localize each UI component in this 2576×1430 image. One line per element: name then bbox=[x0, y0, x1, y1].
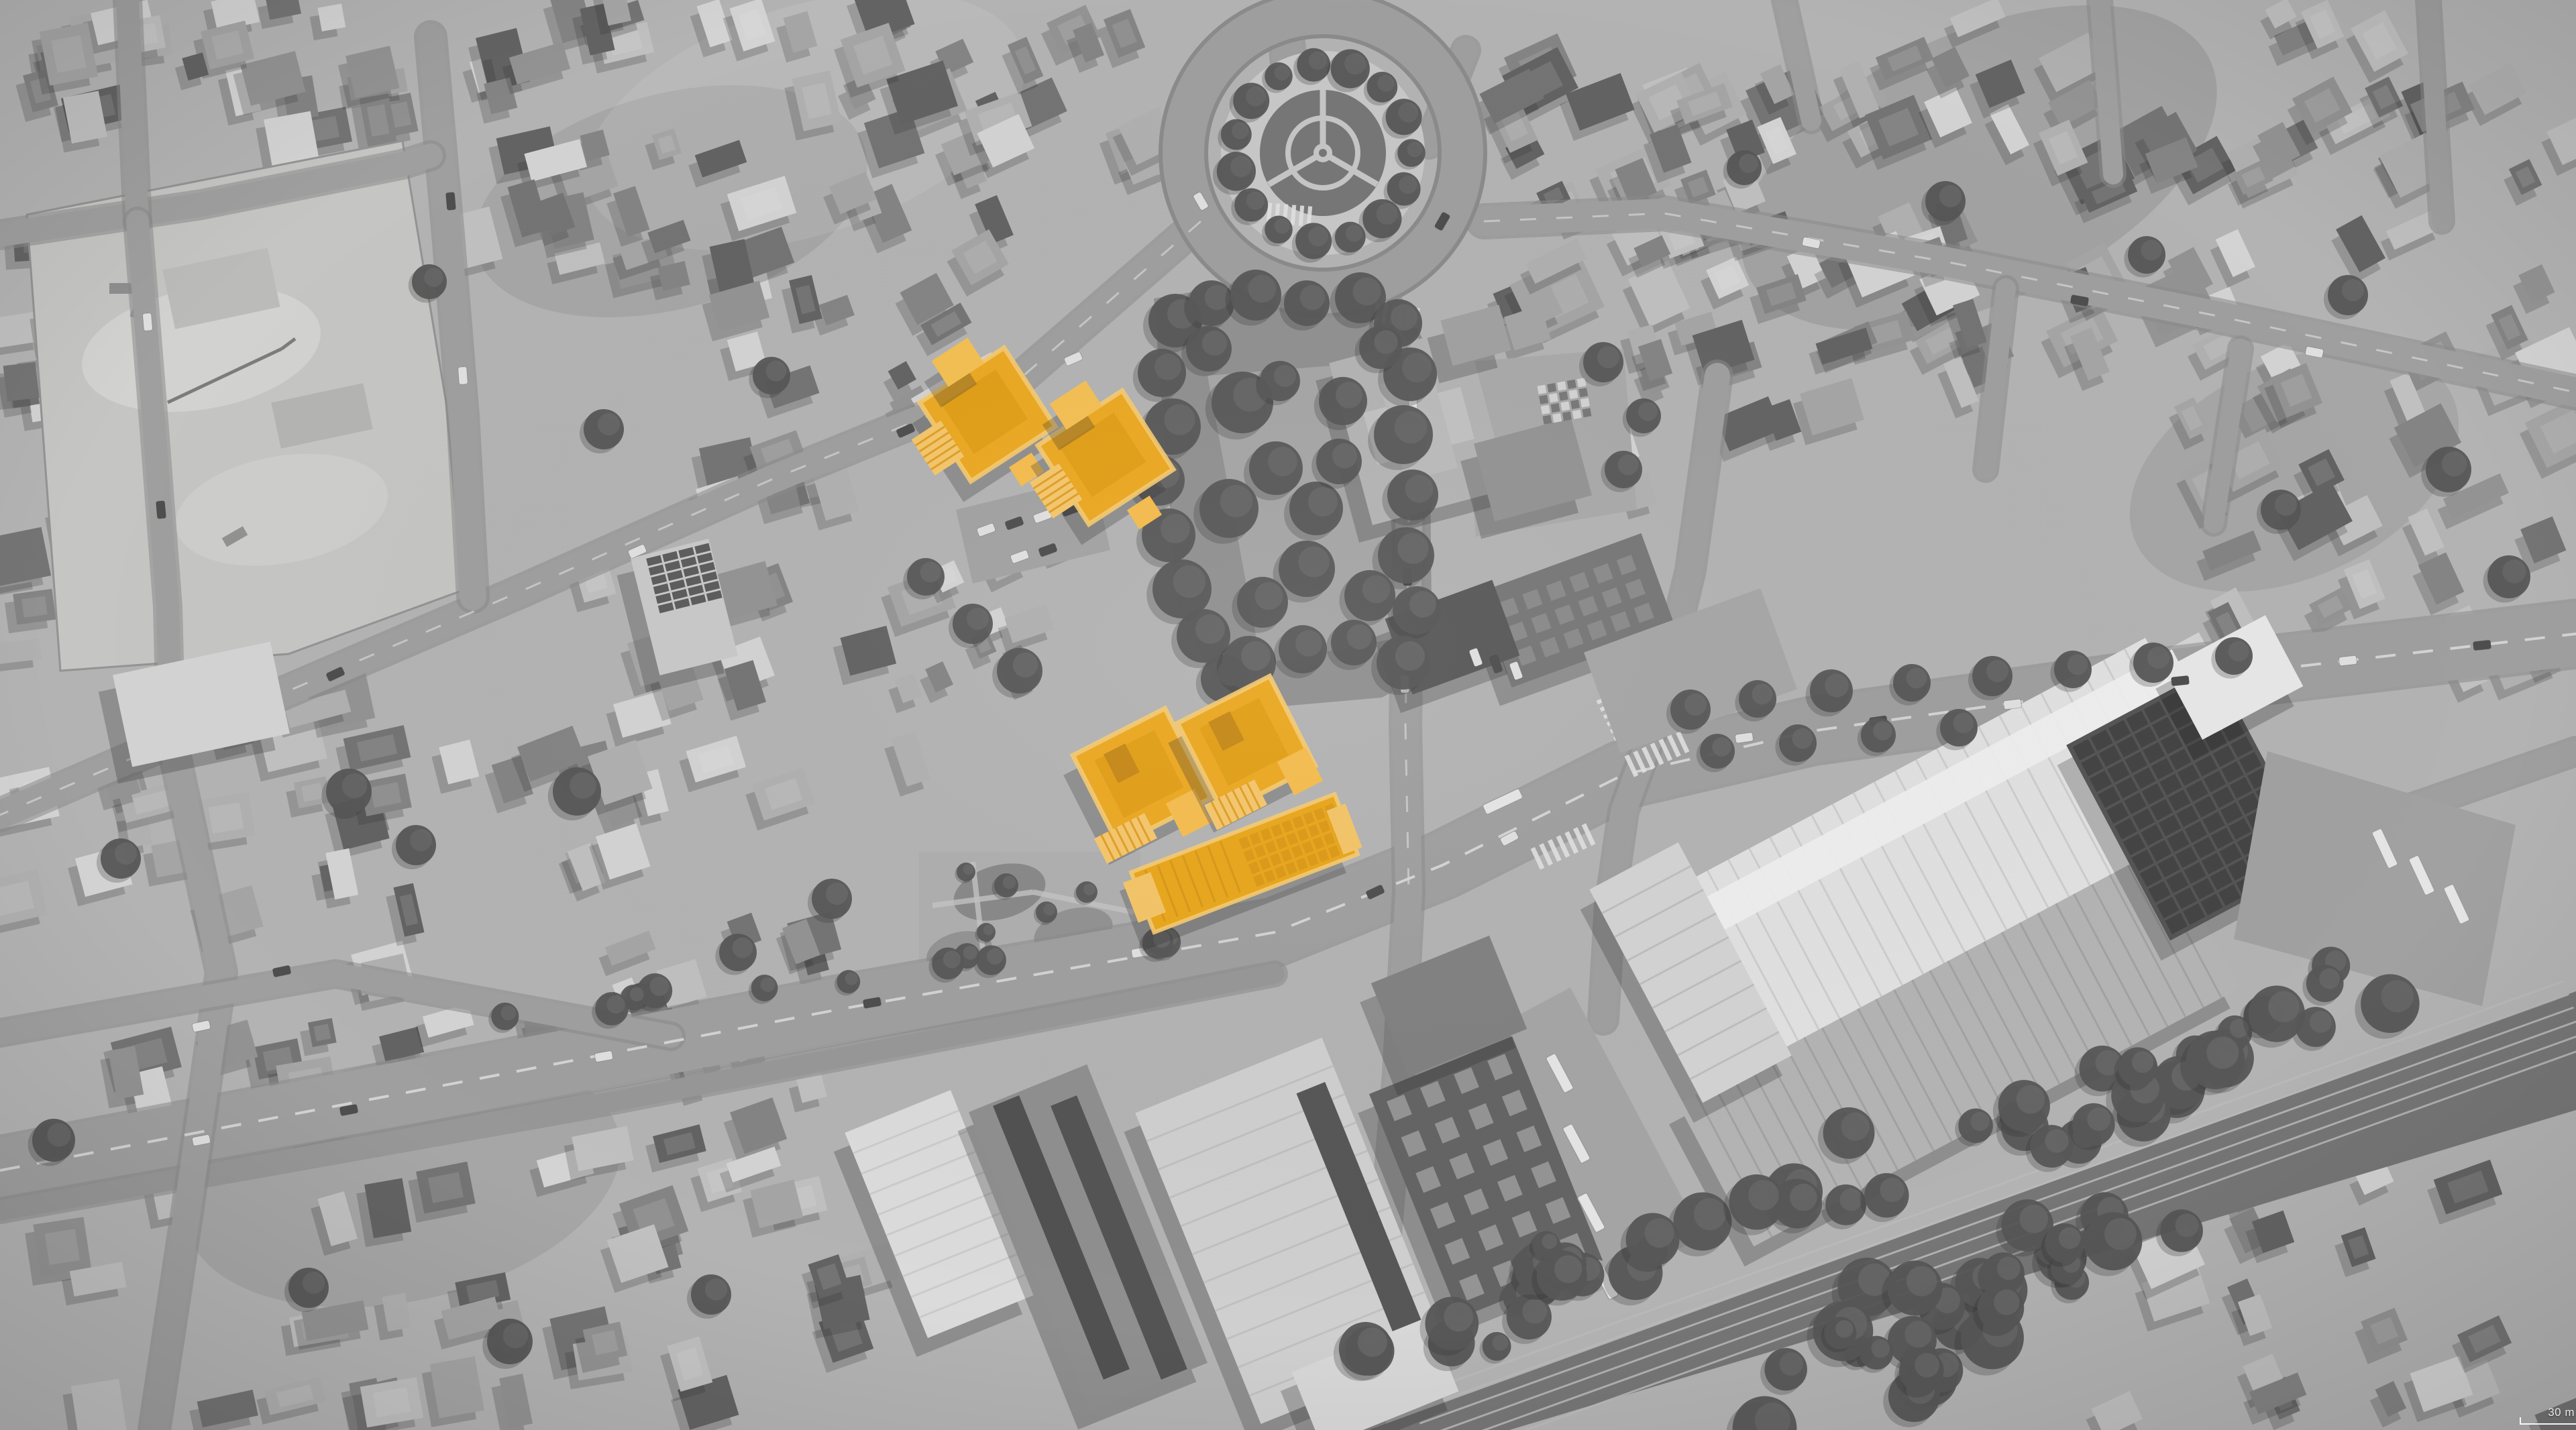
vignette bbox=[0, 0, 2576, 1430]
map-canvas bbox=[0, 0, 2576, 1430]
scale-bar-label: 30 m bbox=[2548, 1406, 2575, 1419]
aerial-orthophoto-map: 30 m bbox=[0, 0, 2576, 1430]
map-scale-bar: 30 m bbox=[2517, 1406, 2576, 1426]
